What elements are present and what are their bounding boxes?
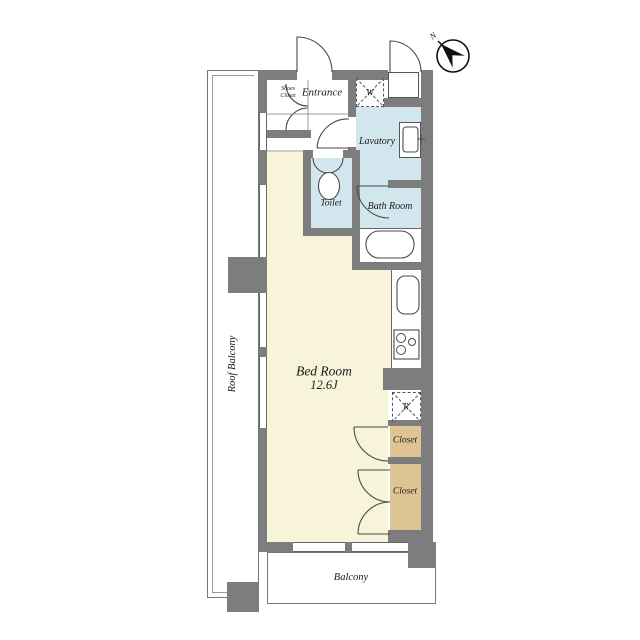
- wall: [228, 257, 267, 293]
- label-roof-balcony: Roof Balcony: [228, 336, 239, 393]
- kitchen-counter: [391, 270, 421, 368]
- wall: [259, 347, 267, 357]
- label-closet-upper: Closet: [393, 436, 417, 446]
- window: [259, 185, 267, 257]
- wall: [259, 80, 267, 113]
- room-bed-room-part: [267, 270, 391, 368]
- wall: [388, 530, 433, 542]
- meter-box: [388, 72, 419, 98]
- wall: [303, 158, 311, 236]
- floor-plan: Entrance Shoes Closet Lavatory Toilet Ba…: [0, 0, 640, 640]
- label-closet-lower: Closet: [393, 487, 417, 497]
- label-bed-room: Bed Room: [296, 364, 352, 378]
- wall: [408, 542, 436, 568]
- label-toilet: Toilet: [320, 199, 341, 209]
- bathtub-area: [360, 228, 421, 262]
- wall: [259, 428, 267, 552]
- wall: [259, 542, 293, 552]
- label-shoes-line1: Shoes: [280, 86, 295, 93]
- wall: [303, 150, 313, 158]
- wall: [259, 70, 297, 80]
- door-arc-entrance: [297, 37, 332, 72]
- roof-balcony-railing: [212, 75, 254, 593]
- wall: [384, 98, 421, 107]
- label-refrigerator: R: [403, 403, 409, 412]
- wall: [348, 80, 356, 117]
- window: [352, 542, 408, 552]
- label-lavatory: Lavatory: [359, 137, 395, 147]
- wall: [388, 457, 433, 464]
- window: [259, 357, 267, 428]
- wall: [421, 70, 433, 552]
- window: [259, 293, 267, 347]
- wall: [332, 70, 388, 80]
- room-bed-room-part: [267, 236, 352, 270]
- label-bath-room: Bath Room: [368, 202, 413, 212]
- north-compass-icon: [437, 40, 469, 72]
- wall: [383, 368, 433, 390]
- lavatory-sink-alcove: [399, 122, 421, 158]
- window: [293, 542, 345, 552]
- wall: [345, 542, 352, 552]
- wall: [388, 180, 421, 188]
- label-shoes-closet: Shoes Closet: [280, 86, 295, 100]
- room-bed-room: [267, 152, 303, 236]
- wall: [227, 582, 259, 612]
- room-toilet: [311, 158, 352, 228]
- room-closet-lower: [390, 464, 421, 530]
- label-balcony: Balcony: [334, 573, 368, 584]
- wall: [352, 158, 360, 270]
- wall: [388, 420, 433, 426]
- window: [259, 113, 267, 150]
- label-bed-room-size: 12.6J: [310, 379, 337, 392]
- label-shoes-line2: Closet: [280, 93, 295, 100]
- label-north: N: [428, 31, 438, 41]
- wall: [259, 150, 267, 185]
- label-washing-machine: W: [366, 89, 374, 98]
- room-bed-room-part: [267, 426, 388, 542]
- label-entrance: Entrance: [302, 88, 342, 99]
- door-arc-meter-box: [390, 41, 421, 72]
- lavatory-door-gap: [348, 117, 356, 147]
- wall: [343, 150, 360, 158]
- wall: [352, 262, 433, 270]
